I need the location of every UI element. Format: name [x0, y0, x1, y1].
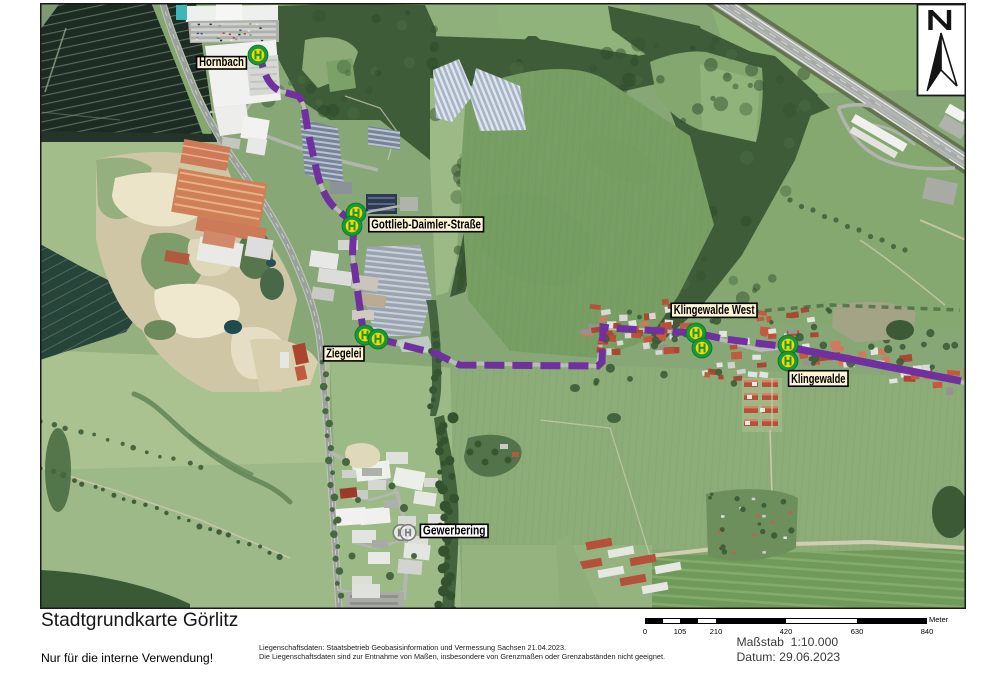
- svg-text:Ziegelei: Ziegelei: [326, 347, 361, 361]
- svg-text:Gottlieb-Daimler-Straße: Gottlieb-Daimler-Straße: [371, 218, 481, 232]
- svg-text:Klingewalde: Klingewalde: [791, 372, 845, 386]
- svg-text:Gewerbering: Gewerbering: [423, 523, 486, 537]
- svg-text:Klingewalde West: Klingewalde West: [674, 303, 755, 317]
- svg-text:Hornbach: Hornbach: [199, 55, 244, 69]
